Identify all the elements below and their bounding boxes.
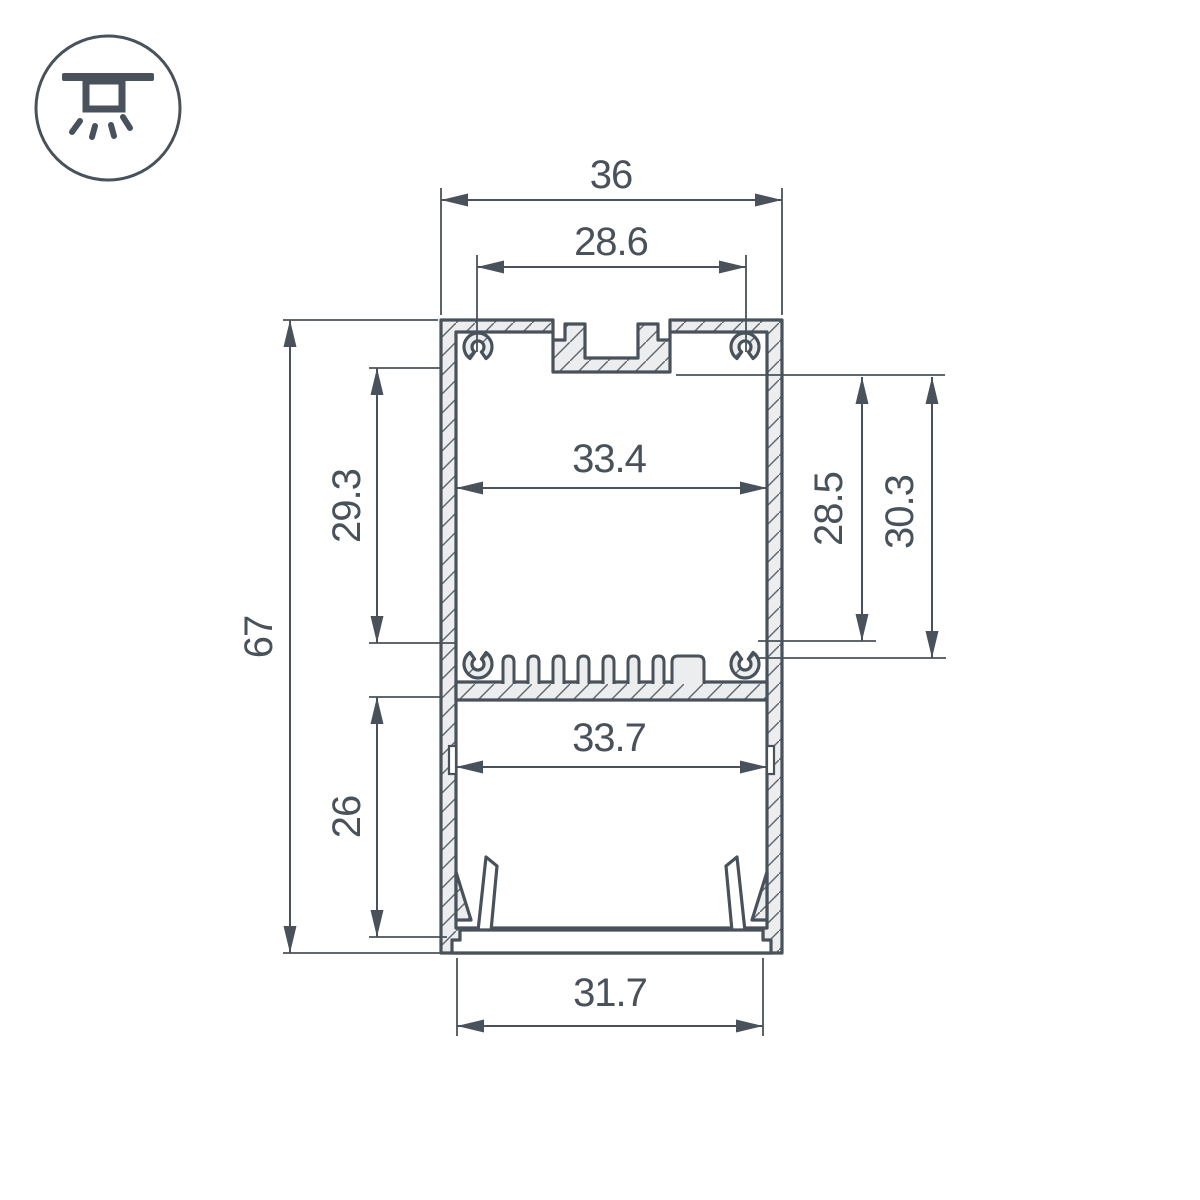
label-upper-height: 29.3 (325, 469, 369, 543)
profile-housing (441, 320, 782, 953)
wall-wedge-left (456, 872, 471, 920)
spring-leg-right (726, 857, 745, 931)
led-shelf (456, 682, 767, 700)
label-groove-width: 28.6 (574, 220, 648, 264)
light-rays (72, 117, 130, 137)
wall-wedge-right (752, 872, 767, 920)
label-overall-height: 67 (237, 616, 281, 659)
spring-leg-left (478, 857, 497, 931)
screw-bosses (464, 333, 759, 678)
diffuser-plate (452, 930, 771, 953)
diffuser-cover (452, 857, 771, 953)
label-depth-fins: 30.3 (878, 475, 922, 549)
ceiling-light-icon (36, 36, 180, 180)
dimension-labels: 36 28.6 33.4 33.7 31.7 67 29.3 26 28.5 3… (237, 153, 922, 1015)
label-lower-width: 33.7 (572, 716, 646, 760)
label-lower-height: 26 (325, 796, 369, 839)
label-depth-shelf: 28.5 (807, 472, 851, 546)
lamp-shade (86, 81, 122, 109)
technical-drawing-page: 36 28.6 33.4 33.7 31.7 67 29.3 26 28.5 3… (0, 0, 1200, 1200)
profile-cross-section (441, 320, 782, 953)
label-overall-width: 36 (590, 153, 633, 197)
profile-drawing: 36 28.6 33.4 33.7 31.7 67 29.3 26 28.5 3… (0, 0, 1200, 1200)
dimension-lines (290, 200, 932, 1026)
wall-recess-left (449, 746, 456, 774)
extension-lines (283, 188, 946, 1036)
wall-recess-right (767, 746, 774, 774)
label-diffuser-width: 31.7 (573, 971, 647, 1015)
shelf-fins (503, 656, 704, 684)
label-upper-width: 33.4 (572, 437, 647, 481)
